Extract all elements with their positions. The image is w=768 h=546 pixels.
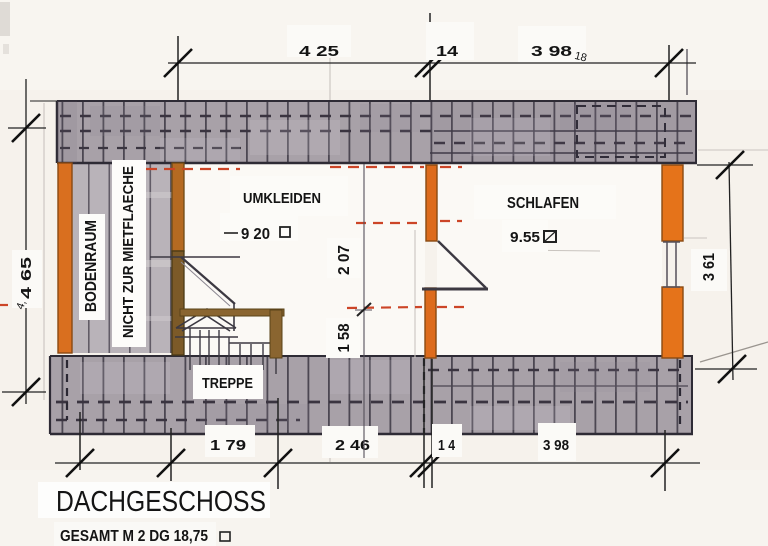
svg-text:2 07: 2 07	[336, 245, 353, 275]
svg-text:4 25: 4 25	[299, 43, 339, 60]
svg-text:9 20: 9 20	[241, 226, 270, 243]
svg-text:3 98: 3 98	[531, 43, 572, 60]
svg-text:NICHT ZUR MIETFLAECHE: NICHT ZUR MIETFLAECHE	[120, 166, 137, 338]
svg-text:DACHGESCHOSS: DACHGESCHOSS	[56, 486, 266, 518]
svg-text:2 46: 2 46	[335, 437, 370, 454]
svg-text:3 98: 3 98	[543, 437, 569, 454]
svg-text:1 4: 1 4	[438, 437, 456, 454]
svg-text:GESAMT M 2 DG 18,75: GESAMT M 2 DG 18,75	[60, 528, 208, 545]
svg-text:TREPPE: TREPPE	[202, 375, 253, 392]
svg-text:1 79: 1 79	[210, 437, 246, 454]
svg-text:1 58: 1 58	[336, 323, 353, 352]
svg-text:BODENRAUM: BODENRAUM	[83, 220, 100, 312]
svg-text:14: 14	[436, 43, 459, 60]
svg-text:3 61: 3 61	[701, 253, 718, 281]
svg-text:4 65: 4 65	[18, 257, 35, 299]
svg-text:9.55: 9.55	[510, 229, 540, 246]
svg-text:SCHLAFEN: SCHLAFEN	[507, 195, 579, 212]
svg-text:UMKLEIDEN: UMKLEIDEN	[243, 190, 321, 207]
